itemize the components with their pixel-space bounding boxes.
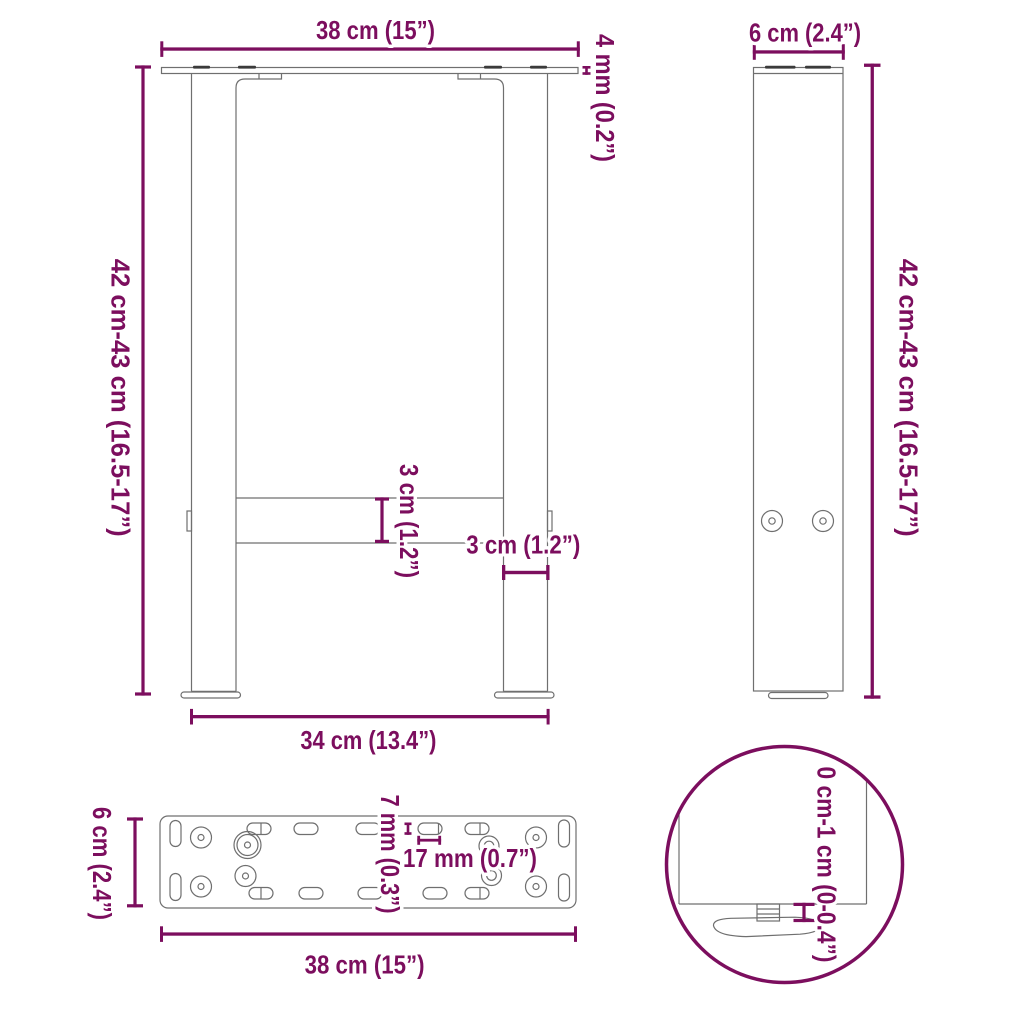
svg-text:6 cm (2.4”): 6 cm (2.4”): [87, 807, 117, 920]
svg-text:6 cm (2.4”): 6 cm (2.4”): [749, 18, 861, 48]
svg-text:42 cm-43 cm (16.5-17”): 42 cm-43 cm (16.5-17”): [106, 259, 136, 537]
svg-text:7 mm (0.3”): 7 mm (0.3”): [375, 795, 405, 914]
svg-text:3 cm (1.2”): 3 cm (1.2”): [466, 530, 580, 560]
svg-text:3 cm (1.2”): 3 cm (1.2”): [394, 464, 424, 578]
svg-text:38 cm (15”): 38 cm (15”): [305, 950, 425, 980]
svg-text:17 mm (0.7”): 17 mm (0.7”): [403, 843, 537, 873]
svg-text:34 cm (13.4”): 34 cm (13.4”): [300, 725, 436, 755]
svg-text:4 mm (0.2”): 4 mm (0.2”): [590, 34, 620, 162]
svg-text:0 cm-1 cm (0-0.4”): 0 cm-1 cm (0-0.4”): [812, 767, 842, 963]
svg-text:42 cm-43 cm (16.5-17”): 42 cm-43 cm (16.5-17”): [894, 259, 924, 537]
svg-text:38 cm (15”): 38 cm (15”): [316, 15, 435, 45]
